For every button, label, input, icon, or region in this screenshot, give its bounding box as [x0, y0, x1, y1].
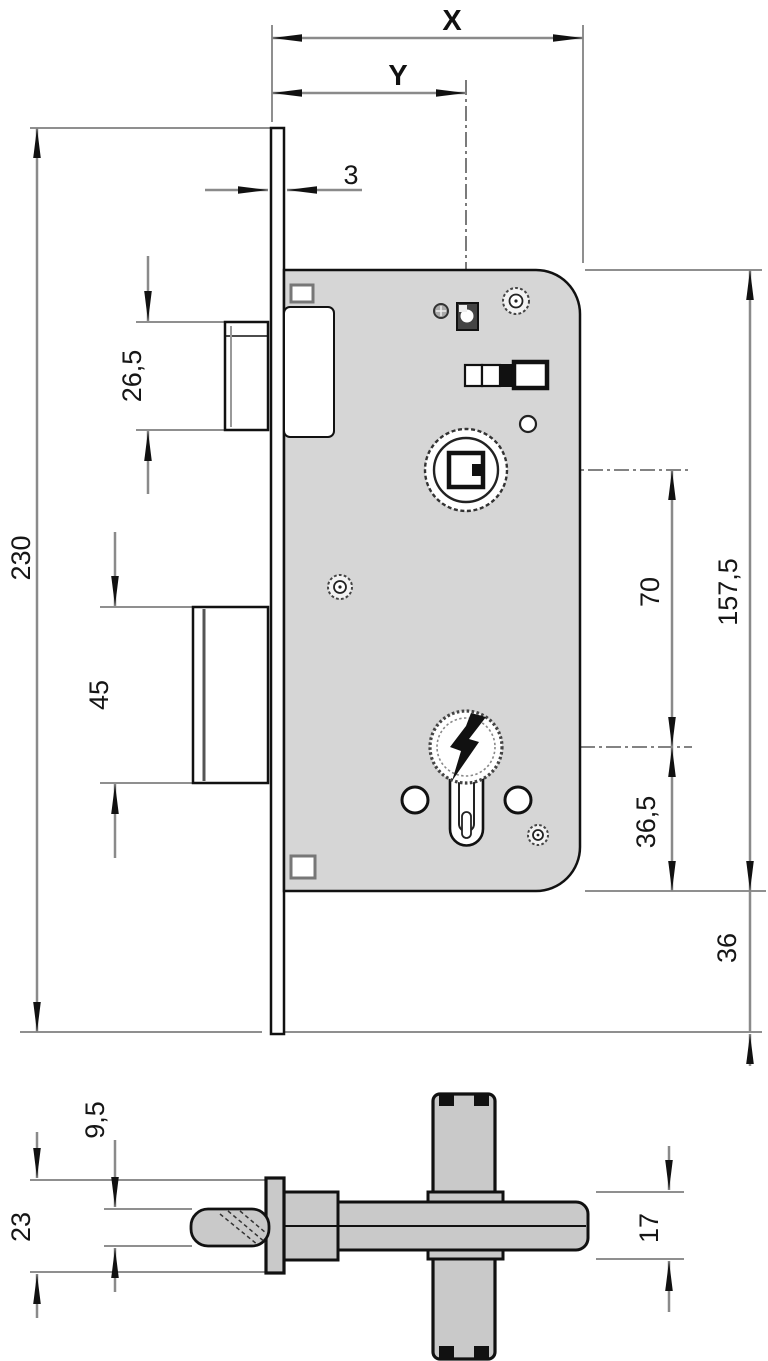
dim-70-label: 70 — [635, 577, 665, 607]
dim-x-label: X — [442, 5, 462, 37]
dim-45-label: 45 — [84, 680, 114, 710]
screw-middle-icon — [328, 575, 352, 599]
dim-17-label: 17 — [634, 1213, 664, 1243]
dimension-case-thickness: 17 — [634, 1146, 669, 1312]
bolt-hole-left — [402, 787, 428, 813]
latch-slider — [465, 362, 547, 388]
dim-3-label: 3 — [343, 160, 358, 190]
screw-top-icon — [503, 288, 529, 314]
dimension-case-height: 157,5 — [713, 270, 750, 891]
fixing-hole-top — [291, 285, 313, 302]
lock-technical-drawing: X Y 3 230 26,5 45 157,5 70 36,5 36 — [0, 0, 768, 1361]
lock-diagram-svg: X Y 3 230 26,5 45 157,5 70 36,5 36 — [0, 0, 768, 1361]
dimension-case-to-plate-end: 36 — [712, 891, 750, 1066]
dimension-y: Y — [272, 60, 466, 93]
dimension-cylinder-to-case-bottom: 36,5 — [631, 747, 672, 891]
spindle-follower — [425, 429, 507, 511]
dim-26-5-label: 26,5 — [117, 350, 147, 403]
dim-23-label: 23 — [6, 1212, 36, 1242]
fixing-hole-bottom — [291, 856, 315, 878]
dim-230-label: 230 — [6, 535, 36, 580]
dimension-x: X — [272, 5, 583, 38]
dimension-latch-height: 26,5 — [117, 256, 148, 494]
bottom-view — [191, 1093, 588, 1359]
dim-9-5-label: 9,5 — [80, 1101, 110, 1139]
dimension-total-height: 230 — [6, 128, 37, 1032]
bolt-hole-right — [505, 787, 531, 813]
latch-bolt-head — [225, 322, 268, 430]
dim-36-label: 36 — [712, 933, 742, 963]
deadbolt-head — [193, 607, 268, 783]
dimension-deadbolt-height: 45 — [84, 532, 115, 858]
small-screw-icon — [434, 304, 448, 318]
pin-hole — [520, 416, 536, 432]
screw-bottom-icon — [528, 825, 548, 845]
latch-bolt-rear — [284, 307, 334, 437]
dimension-hub-to-cylinder: 70 — [635, 470, 672, 747]
latch-bolt-edge — [191, 1209, 269, 1246]
dim-36-5-label: 36,5 — [631, 796, 661, 849]
front-view — [193, 128, 580, 1034]
dimension-latch-depth: 9,5 — [80, 1101, 115, 1292]
dim-157-5-label: 157,5 — [713, 558, 743, 626]
dimension-plate-width: 23 — [6, 1132, 37, 1318]
dim-y-label: Y — [388, 60, 407, 92]
faceplate — [271, 128, 284, 1034]
spring-clip — [457, 303, 478, 330]
